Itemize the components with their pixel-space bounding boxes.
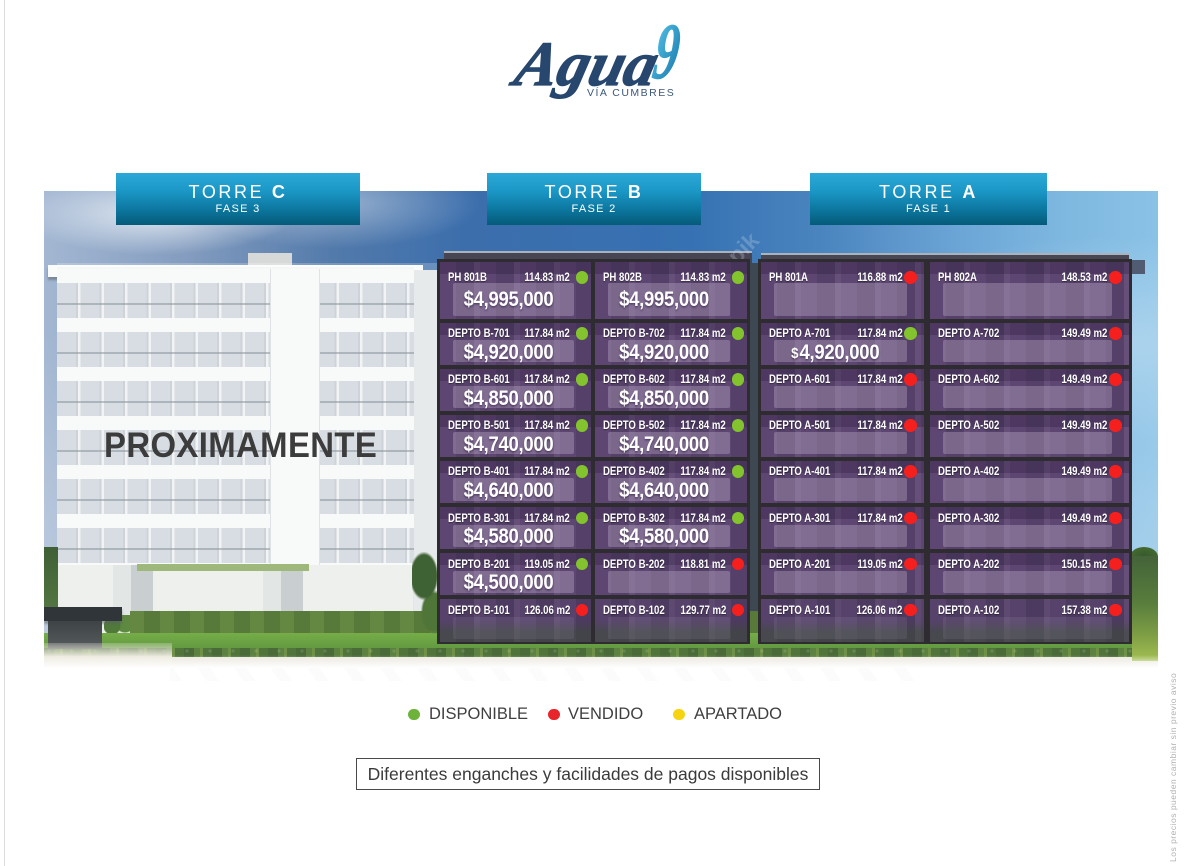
svg-text:VÍA CUMBRES: VÍA CUMBRES	[587, 86, 675, 99]
